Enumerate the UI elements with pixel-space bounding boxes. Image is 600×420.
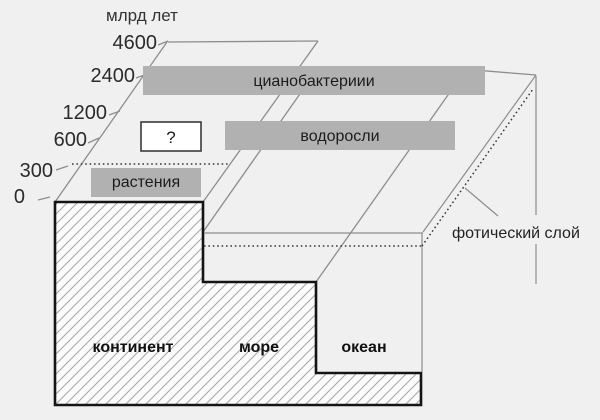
photic-layer-label: фотический слой [452,225,580,242]
plane-back-left-edge [168,41,318,42]
plane-right-edge [423,75,536,232]
bar-label-cyanobacteria: цианобактериии [253,73,374,90]
unknown-box-label: ? [166,128,175,147]
zone-label-sea: море [239,339,279,356]
zone-label-ocean: океан [341,339,386,356]
tick-label-300: 300 [20,160,53,182]
tick-label-600: 600 [54,129,87,151]
tick-1200 [109,111,120,115]
tick-300 [56,166,68,170]
bar-label-algae: водоросли [300,128,379,145]
evolution-biosphere-diagram: млрд лет 4600 2400 1200 600 300 0 цианоб… [0,0,600,420]
axis-title: млрд лет [106,6,178,25]
shoreline-waterlevel-line [203,91,302,232]
shelf-edge-line [316,78,460,282]
tick-0 [38,197,50,200]
bar-label-plants: растения [112,174,180,191]
tick-label-0: 0 [14,186,25,208]
photic-bottom-side-line [422,89,533,246]
tick-label-2400: 2400 [91,65,136,87]
tick-label-1200: 1200 [63,102,108,124]
tick-label-4600: 4600 [113,32,158,54]
diagram-canvas: млрд лет 4600 2400 1200 600 300 0 цианоб… [0,0,600,420]
zone-label-continent: континент [93,339,174,356]
photic-pointer-line [465,188,498,216]
